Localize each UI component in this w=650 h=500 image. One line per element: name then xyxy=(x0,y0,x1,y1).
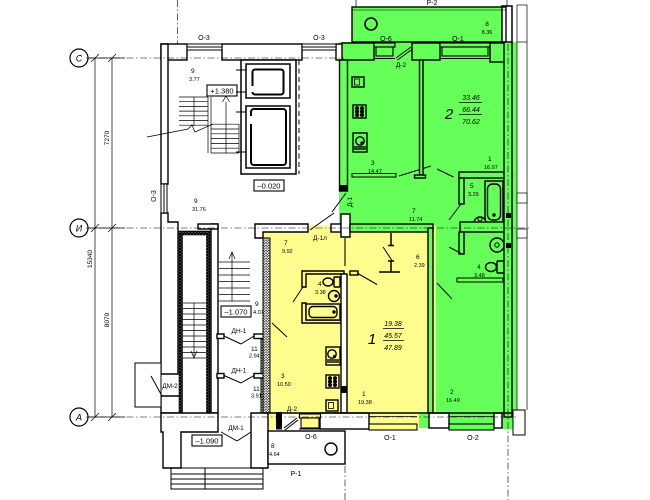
svg-text:О-3: О-3 xyxy=(151,190,158,202)
svg-text:О-2: О-2 xyxy=(467,435,479,442)
svg-text:–1.070: –1.070 xyxy=(225,308,248,317)
svg-text:О-1: О-1 xyxy=(384,435,396,442)
svg-text:3.91: 3.91 xyxy=(251,394,262,400)
svg-text:–1.090: –1.090 xyxy=(196,437,219,446)
svg-text:8.36: 8.36 xyxy=(482,30,493,36)
svg-text:О-6: О-6 xyxy=(305,434,317,441)
svg-text:О-3: О-3 xyxy=(313,35,325,42)
svg-text:2: 2 xyxy=(444,106,454,123)
svg-text:Р-1: Р-1 xyxy=(291,471,302,478)
svg-text:3: 3 xyxy=(281,373,285,380)
svg-text:+1.380: +1.380 xyxy=(210,87,233,96)
svg-text:С: С xyxy=(76,54,83,64)
svg-text:А: А xyxy=(75,413,82,423)
svg-text:33.46: 33.46 xyxy=(462,95,480,102)
svg-text:2.39: 2.39 xyxy=(414,263,425,269)
svg-text:16.97: 16.97 xyxy=(484,165,498,171)
svg-text:ДМ-2: ДМ-2 xyxy=(162,383,178,390)
svg-text:7: 7 xyxy=(284,240,288,247)
svg-text:4: 4 xyxy=(477,264,481,271)
svg-text:10.50: 10.50 xyxy=(277,382,291,388)
svg-text:1: 1 xyxy=(488,156,492,163)
svg-text:15340: 15340 xyxy=(87,250,94,268)
svg-text:О-6: О-6 xyxy=(380,36,392,43)
svg-text:19.38: 19.38 xyxy=(358,400,372,406)
svg-text:4: 4 xyxy=(318,281,322,288)
svg-text:1: 1 xyxy=(362,391,366,398)
svg-text:6: 6 xyxy=(416,254,420,261)
svg-text:Р-2: Р-2 xyxy=(427,0,438,7)
svg-text:4.07: 4.07 xyxy=(253,310,264,316)
svg-text:19.38: 19.38 xyxy=(384,321,402,328)
svg-text:ДН-1: ДН-1 xyxy=(232,328,247,335)
svg-text:Д-1: Д-1 xyxy=(347,197,354,208)
svg-text:3: 3 xyxy=(371,160,375,167)
svg-text:11: 11 xyxy=(253,386,260,393)
svg-text:45.57: 45.57 xyxy=(384,333,403,340)
svg-text:3.29: 3.29 xyxy=(468,192,479,198)
svg-text:11: 11 xyxy=(251,346,258,353)
svg-text:9: 9 xyxy=(194,198,198,205)
svg-text:О-3: О-3 xyxy=(198,35,210,42)
svg-text:Д-2: Д-2 xyxy=(396,62,407,69)
svg-text:–0.020: –0.020 xyxy=(258,182,281,191)
svg-text:И: И xyxy=(76,224,83,234)
svg-text:16.49: 16.49 xyxy=(446,398,460,404)
svg-text:9: 9 xyxy=(255,301,259,308)
svg-text:3.38: 3.38 xyxy=(315,290,326,296)
svg-text:1: 1 xyxy=(368,331,376,348)
svg-text:3.77: 3.77 xyxy=(189,77,200,83)
svg-text:66.44: 66.44 xyxy=(462,107,480,114)
svg-text:70.62: 70.62 xyxy=(462,119,480,126)
svg-text:2: 2 xyxy=(450,389,454,396)
svg-text:Д-1л: Д-1л xyxy=(313,235,327,242)
svg-text:8: 8 xyxy=(485,21,489,28)
svg-text:ДН-1: ДН-1 xyxy=(232,368,247,375)
svg-text:7: 7 xyxy=(412,208,416,215)
svg-text:9.92: 9.92 xyxy=(282,249,293,255)
svg-text:7270: 7270 xyxy=(104,130,111,145)
svg-text:47.89: 47.89 xyxy=(384,345,402,352)
svg-text:ДМ-1: ДМ-1 xyxy=(228,425,244,432)
svg-text:8070: 8070 xyxy=(104,312,111,327)
svg-text:2.94: 2.94 xyxy=(249,354,260,360)
svg-text:9: 9 xyxy=(191,68,195,75)
svg-text:8: 8 xyxy=(271,443,275,450)
svg-text:4.64: 4.64 xyxy=(269,452,280,458)
svg-text:О-1: О-1 xyxy=(452,36,464,43)
svg-text:5: 5 xyxy=(470,183,474,190)
svg-text:Д-2: Д-2 xyxy=(287,406,298,413)
svg-text:31.76: 31.76 xyxy=(192,207,206,213)
svg-text:11.74: 11.74 xyxy=(409,217,422,223)
